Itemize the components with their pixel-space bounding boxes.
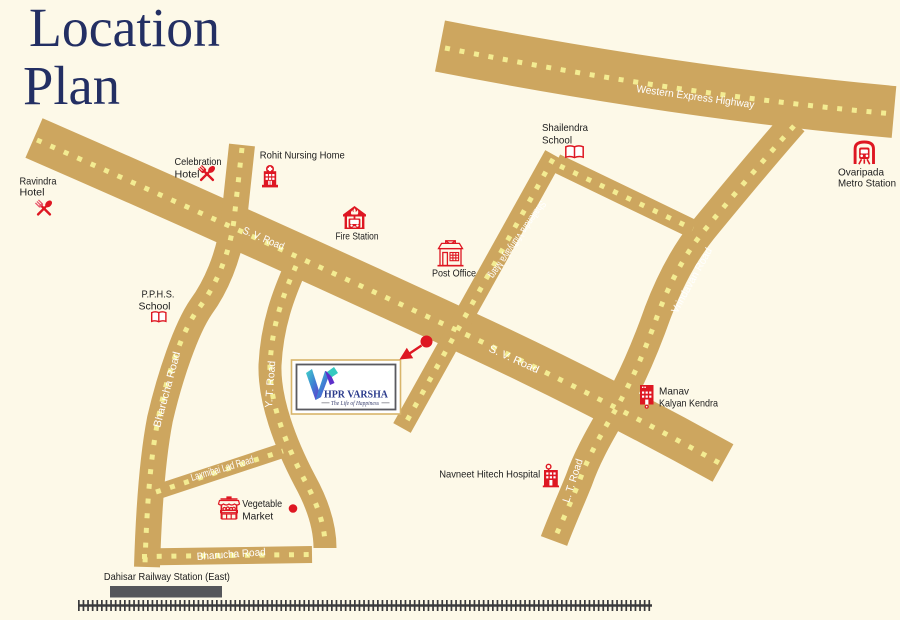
svg-text:Navneet Hitech Hospital: Navneet Hitech Hospital [439,469,540,481]
svg-text:Rohit Nursing Home: Rohit Nursing Home [260,150,345,162]
svg-text:Hotel: Hotel [20,187,45,199]
svg-text:Celebration: Celebration [175,156,222,168]
svg-text:Post Office: Post Office [432,268,476,280]
svg-text:Location: Location [29,0,220,58]
svg-text:The Life of Happiness: The Life of Happiness [331,400,380,407]
svg-text:HPR VARSHA: HPR VARSHA [324,390,389,401]
svg-text:Vegetable: Vegetable [242,498,282,510]
svg-text:School: School [542,135,572,147]
svg-text:Market: Market [242,511,273,523]
svg-text:Dahisar Railway Station (East): Dahisar Railway Station (East) [104,571,230,583]
svg-text:Plan: Plan [23,55,120,116]
svg-text:Hotel: Hotel [175,169,200,181]
svg-text:Metro Station: Metro Station [838,178,896,190]
svg-text:Kalyan Kendra: Kalyan Kendra [659,398,718,410]
svg-text:Fire Station: Fire Station [336,231,379,243]
svg-text:Shailendra: Shailendra [542,122,588,134]
svg-text:Manav: Manav [659,386,690,398]
svg-text:P.P.H.S.: P.P.H.S. [142,289,175,301]
svg-text:School: School [139,301,171,313]
